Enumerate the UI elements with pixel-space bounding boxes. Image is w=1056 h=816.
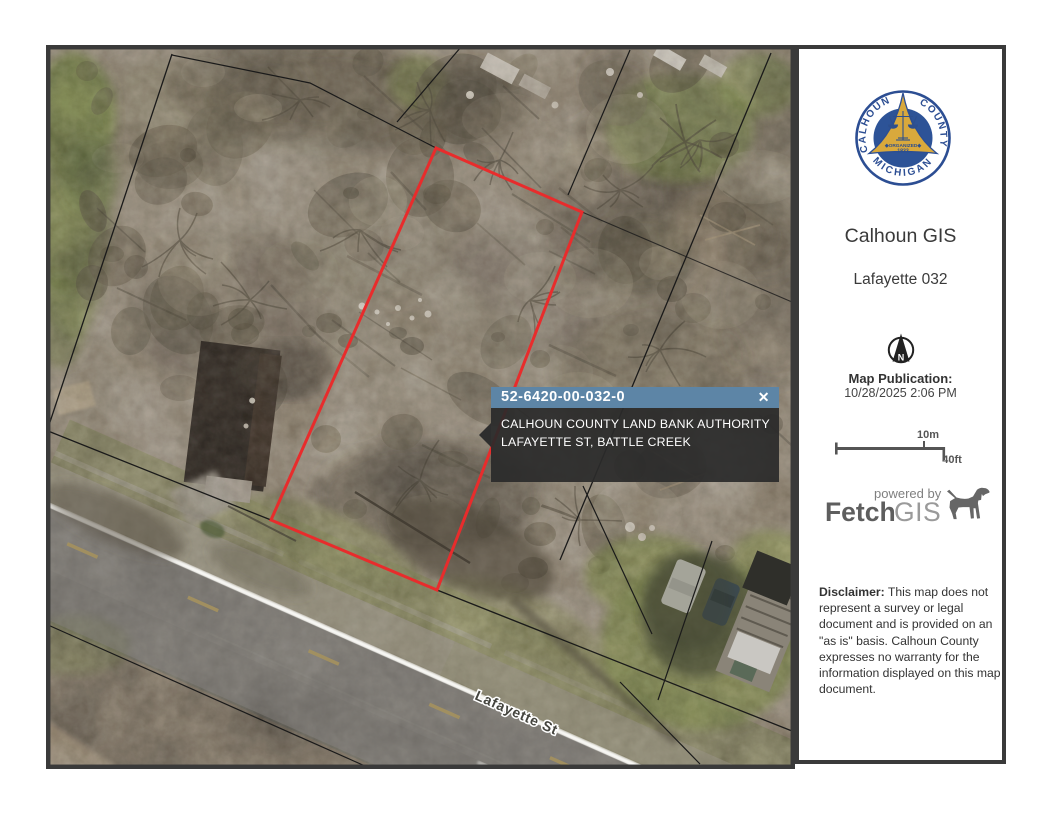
svg-text:10m: 10m [917, 429, 939, 441]
svg-text:N: N [898, 353, 905, 363]
svg-text:40ft: 40ft [942, 454, 962, 466]
svg-text:Fetch: Fetch [825, 497, 896, 527]
svg-text:1833: 1833 [897, 149, 909, 155]
svg-text:GIS: GIS [894, 497, 941, 527]
